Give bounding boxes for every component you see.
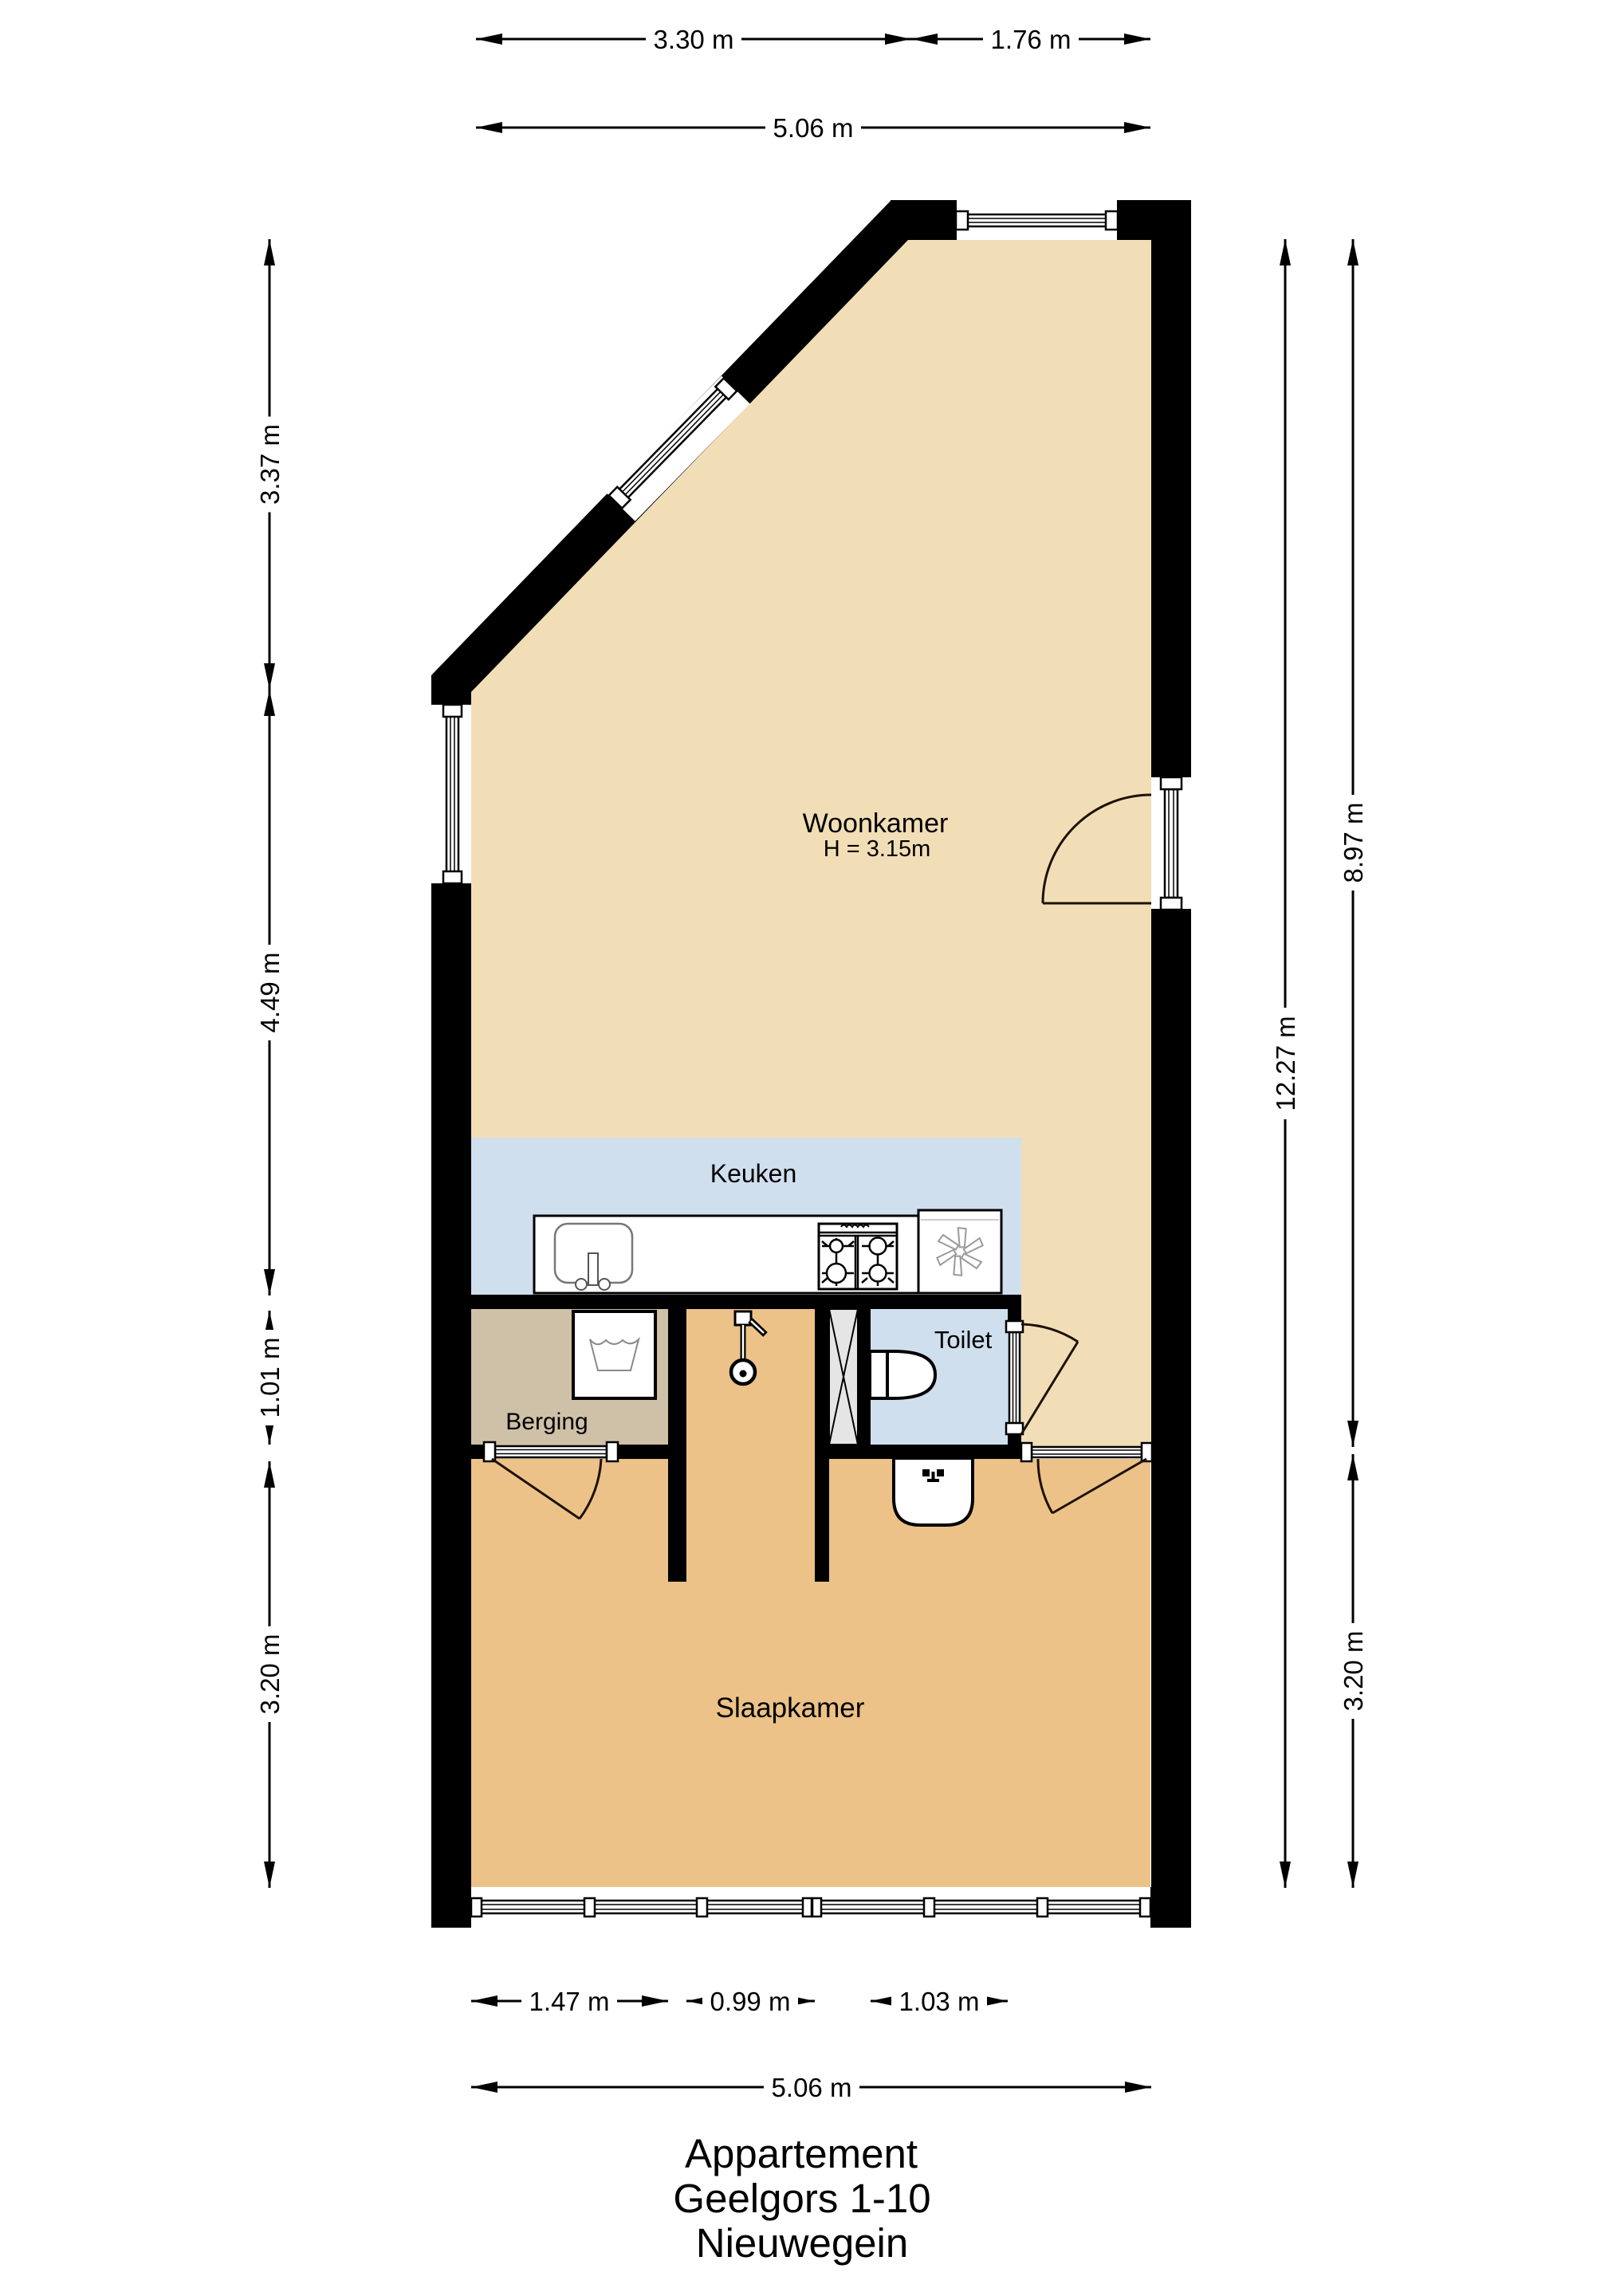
svg-text:Woonkamer: Woonkamer bbox=[803, 808, 949, 839]
svg-text:Slaapkamer: Slaapkamer bbox=[716, 1693, 865, 1724]
svg-text:Appartement: Appartement bbox=[685, 2131, 918, 2176]
svg-text:Geelgors 1-10: Geelgors 1-10 bbox=[673, 2176, 930, 2221]
svg-text:3.37 m: 3.37 m bbox=[255, 424, 285, 505]
svg-text:1.03 m: 1.03 m bbox=[899, 1987, 980, 2016]
svg-text:4.49 m: 4.49 m bbox=[255, 953, 285, 1033]
svg-text:5.06 m: 5.06 m bbox=[773, 113, 854, 143]
svg-text:5.06 m: 5.06 m bbox=[772, 2073, 852, 2102]
svg-text:3.20 m: 3.20 m bbox=[255, 1634, 285, 1715]
svg-text:12.27 m: 12.27 m bbox=[1271, 1016, 1300, 1111]
svg-text:8.97 m: 8.97 m bbox=[1339, 803, 1368, 883]
svg-text:1.76 m: 1.76 m bbox=[991, 25, 1072, 54]
svg-text:0.99 m: 0.99 m bbox=[710, 1987, 791, 2016]
svg-text:1.01 m: 1.01 m bbox=[255, 1338, 285, 1418]
svg-text:Berging: Berging bbox=[505, 1409, 588, 1435]
svg-text:Keuken: Keuken bbox=[710, 1159, 797, 1188]
svg-text:H = 3.15m: H = 3.15m bbox=[824, 836, 931, 862]
svg-text:1.47 m: 1.47 m bbox=[529, 1987, 610, 2016]
svg-text:Nieuwegein: Nieuwegein bbox=[696, 2220, 909, 2266]
svg-text:3.30 m: 3.30 m bbox=[654, 25, 734, 54]
svg-text:3.20 m: 3.20 m bbox=[1339, 1631, 1368, 1712]
svg-text:Toilet: Toilet bbox=[934, 1326, 993, 1354]
